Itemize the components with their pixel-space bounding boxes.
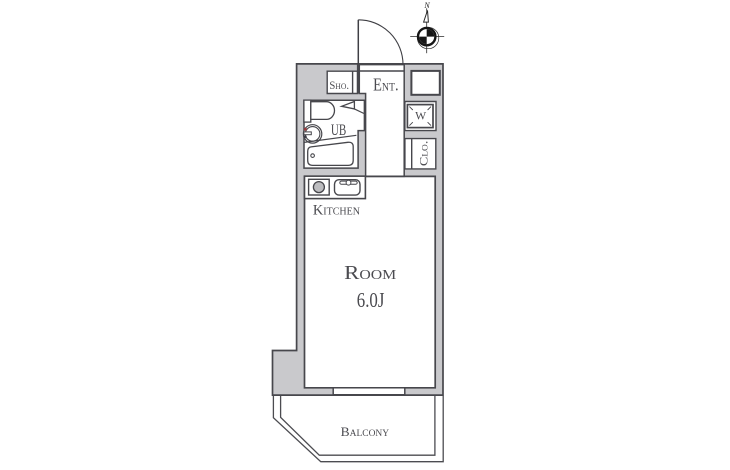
svg-text:Clo.: Clo.: [416, 141, 430, 167]
svg-text:UB: UB: [331, 122, 346, 139]
svg-text:Room: Room: [344, 262, 397, 284]
svg-text:Kitchen: Kitchen: [313, 203, 360, 219]
svg-text:6.0J: 6.0J: [357, 289, 385, 312]
svg-text:W: W: [415, 110, 427, 123]
svg-text:Sho.: Sho.: [329, 80, 349, 92]
svg-text:Ent.: Ent.: [373, 75, 399, 95]
svg-text:Balcony: Balcony: [341, 425, 390, 439]
svg-text:N: N: [423, 1, 430, 10]
